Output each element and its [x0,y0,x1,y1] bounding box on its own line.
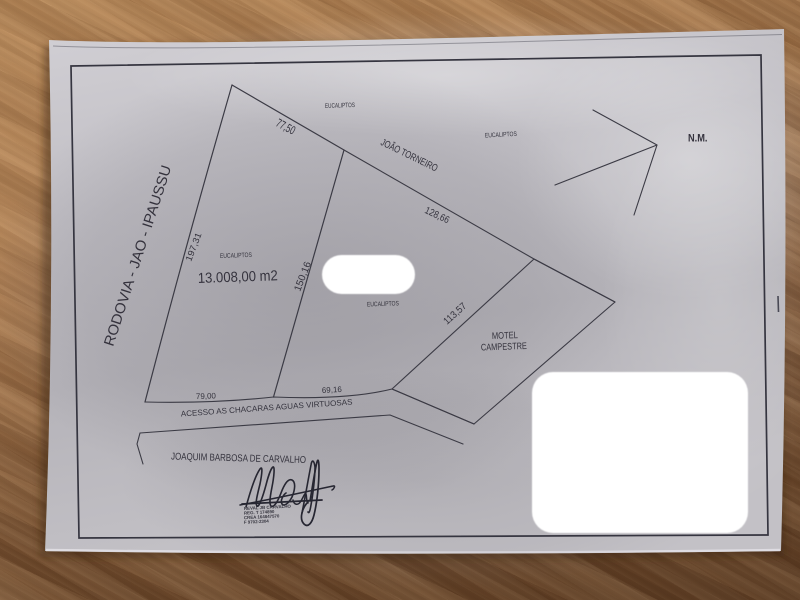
svg-text:MOTEL: MOTEL [492,330,518,342]
svg-text:EUCALIPTOS: EUCALIPTOS [220,252,253,260]
svg-text:EUCALIPTOS: EUCALIPTOS [325,102,356,110]
svg-text:CAMPESTRE: CAMPESTRE [481,341,527,354]
svg-text:EUCALIPTOS: EUCALIPTOS [367,300,400,308]
svg-text:N.M.: N.M. [688,133,708,145]
svg-text:79,00: 79,00 [196,391,217,401]
svg-text:69,16: 69,16 [322,385,343,395]
svg-text:13.008,00 m2: 13.008,00 m2 [198,268,279,287]
